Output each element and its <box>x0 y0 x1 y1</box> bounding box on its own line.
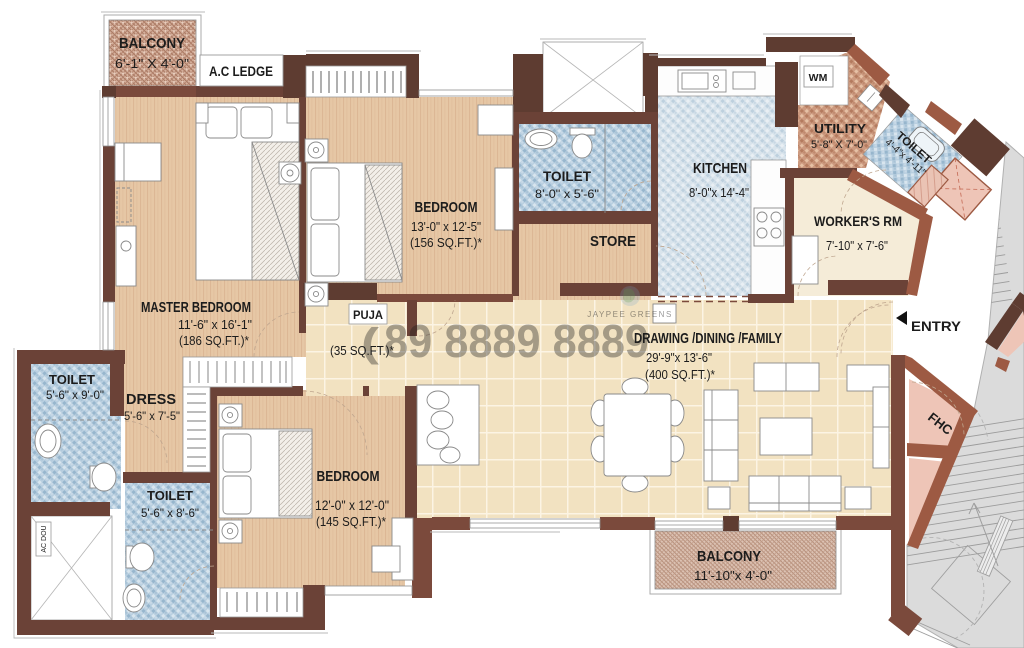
svg-text:5'-6" x 7'-5": 5'-6" x 7'-5" <box>124 409 180 423</box>
svg-text:WM: WM <box>809 72 828 84</box>
svg-text:(186 SQ.FT.)*: (186 SQ.FT.)* <box>179 333 249 348</box>
svg-text:BEDROOM: BEDROOM <box>317 468 380 485</box>
svg-text:TOILET: TOILET <box>147 488 193 503</box>
svg-text:11'-6" x 16'-1": 11'-6" x 16'-1" <box>178 317 252 332</box>
svg-text:TOILET: TOILET <box>49 372 95 387</box>
svg-text:AC DOU: AC DOU <box>41 525 48 552</box>
svg-text:5'-6" x 8'-6": 5'-6" x 8'-6" <box>141 506 199 520</box>
svg-text:(: ( <box>361 321 380 365</box>
svg-text:TOILET: TOILET <box>543 168 591 184</box>
svg-text:WORKER'S RM: WORKER'S RM <box>814 213 902 229</box>
svg-text:29'-9"x 13'-6": 29'-9"x 13'-6" <box>646 350 712 365</box>
svg-text:MASTER BEDROOM: MASTER BEDROOM <box>141 299 251 316</box>
svg-text:UTILITY: UTILITY <box>814 121 866 136</box>
svg-text:(156 SQ.FT.)*: (156 SQ.FT.)* <box>410 235 482 250</box>
svg-text:BALCONY: BALCONY <box>119 35 185 52</box>
svg-text:STORE: STORE <box>590 233 636 250</box>
svg-text:11'-10"x 4'-0": 11'-10"x 4'-0" <box>694 568 772 583</box>
svg-text:A.C LEDGE: A.C LEDGE <box>209 64 273 79</box>
svg-text:PUJA: PUJA <box>353 308 383 322</box>
svg-text:12'-0" x 12'-0": 12'-0" x 12'-0" <box>315 497 389 513</box>
svg-text:5'-6" x 9'-0": 5'-6" x 9'-0" <box>46 388 104 402</box>
svg-text:DRESS: DRESS <box>126 391 176 408</box>
svg-text:(145 SQ.FT.)*: (145 SQ.FT.)* <box>316 514 386 529</box>
svg-text:DRAWING /DINING /FAMILY: DRAWING /DINING /FAMILY <box>634 330 782 347</box>
svg-text:(400 SQ.FT.)*: (400 SQ.FT.)* <box>645 367 715 382</box>
svg-text:8'-0"x 14'-4": 8'-0"x 14'-4" <box>689 185 749 200</box>
svg-text:89 8889 8889: 89 8889 8889 <box>384 315 649 367</box>
svg-text:BALCONY: BALCONY <box>697 548 761 565</box>
svg-text:ENTRY: ENTRY <box>911 318 962 334</box>
svg-text:8'-0" x 5'-6": 8'-0" x 5'-6" <box>535 187 599 201</box>
svg-text:5'-8" X 7'-0": 5'-8" X 7'-0" <box>811 139 867 151</box>
svg-text:KITCHEN: KITCHEN <box>693 160 747 177</box>
svg-text:7'-10" x 7'-6": 7'-10" x 7'-6" <box>826 238 888 253</box>
svg-text:6'-1" X 4'-0": 6'-1" X 4'-0" <box>115 56 189 71</box>
svg-text:BEDROOM: BEDROOM <box>415 199 478 216</box>
svg-text:13'-0" x 12'-5": 13'-0" x 12'-5" <box>411 219 481 234</box>
